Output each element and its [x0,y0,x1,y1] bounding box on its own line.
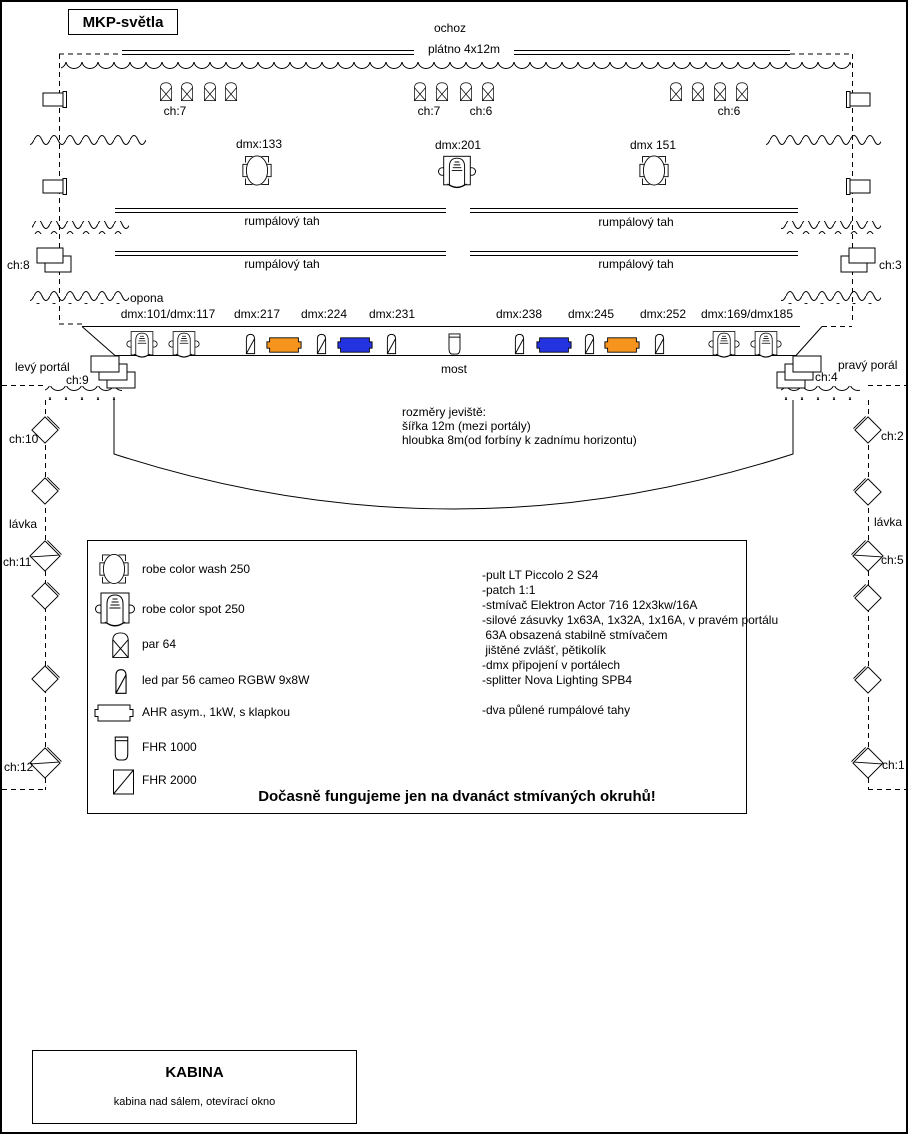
fhr1000-icon [115,737,128,760]
par64-icon [225,83,236,101]
side-light-icon [847,92,871,108]
tech-note-line: -stmívač Elektron Actor 716 12x3kw/16A [482,598,778,613]
stage-dim-line: rozměry jeviště: [402,405,637,419]
channel-label-ch2: ch:2 [881,430,904,443]
side-light-icon [847,179,871,195]
tech-notes: -pult LT Piccolo 2 S24 -patch 1:1 -stmív… [482,568,778,718]
channel-label-ch3: ch:3 [879,259,902,272]
dmx-label: dmx:169/dmx185 [687,308,807,321]
dmx-label: dmx:245 [551,308,631,321]
dmx-label: dmx:201 [418,139,498,152]
fly-bar-label: rumpálový tah [232,215,332,228]
gallery-light-icon [853,478,881,505]
legend-item-label: FHR 1000 [142,741,197,754]
channel-label-ch5: ch:5 [881,554,904,567]
wave-right-opona [781,291,881,304]
channel-label-ch1: ch:1 [882,759,905,772]
tech-note-line: -splitter Nova Lighting SPB4 [482,673,778,688]
fly-bar-row2 [115,252,798,256]
stage-dim-line: hloubka 8m(od forbíny k zadnímu horizont… [402,433,637,447]
channel-label-ch9: ch:9 [66,374,89,387]
tech-note-line: -patch 1:1 [482,583,778,598]
par64-icon [414,83,425,101]
bridge-fixtures [127,332,781,358]
robe-wash-icon [640,156,668,185]
dmx-label: dmx:231 [352,308,432,321]
tech-note-line: jištěné zvlášť, pětikolík [482,643,778,658]
wave-right-2 [781,221,881,234]
kabina-title: KABINA [33,1064,356,1081]
channel-label-ch8: ch:8 [7,259,30,272]
par64-icon [113,633,128,658]
robe-wash-icon [100,554,128,583]
title-box: MKP-světla [68,9,178,35]
tech-note-line [482,688,778,703]
robe-spot-icon [751,332,781,358]
most-label: most [414,363,494,376]
side-light-icon [43,179,67,195]
legend-item-label: led par 56 cameo RGBW 9x8W [142,674,309,687]
tech-note-line: -dva půlené rumpálové tahy [482,703,778,718]
ch3-fixture-cluster [841,248,875,272]
kabina-subtitle: kabina nad sálem, otevírací okno [33,1096,356,1108]
par64-icon [692,83,703,101]
stage-lighting-plan: MKP-světla ochoz plátno 4x12m ch:7 ch:7 … [0,0,908,1134]
ch8-fixture-cluster [37,248,71,272]
par64-icon [670,83,681,101]
gallery-light-icon [30,747,62,778]
lavka-label-left: lávka [9,518,37,531]
led-par-icon [317,334,325,353]
fhr2000-icon [114,770,134,794]
par64-icon [160,83,171,101]
gallery-light-icon [32,665,60,692]
robe-wash-icon [243,156,271,185]
opona-label: opona [130,292,163,305]
dmx-label: dmx:133 [219,138,299,151]
channel-label-ch10: ch:10 [9,433,38,446]
channel-label-ch7: ch:7 [155,105,195,118]
dmx-label: dmx:238 [479,308,559,321]
right-portal-label: pravý porál [838,359,897,372]
lavka-label-right: lávka [874,516,902,529]
wave-right-1 [766,133,881,146]
ahr-blue-fixture [338,338,372,352]
top-border-curtain [61,62,851,75]
gallery-light-icon [853,584,881,611]
gallery-light-icon [32,582,60,609]
kabina-box: KABINA kabina nad sálem, otevírací okno [32,1050,357,1124]
legend-item-label: par 64 [142,638,176,651]
tech-note-line: 63A obsazená stabilně stmívačem [482,628,778,643]
ch9-fixture-cluster [91,356,135,388]
led-par-icon [655,334,663,353]
channel-label-ch4: ch:4 [815,371,838,384]
ahr-icon [95,705,133,721]
legend-item-label: FHR 2000 [142,774,197,787]
robe-spot-icon [127,332,157,358]
channel-label-ch6: ch:6 [709,105,749,118]
par64-icon [204,83,215,101]
channel-label-ch7: ch:7 [409,105,449,118]
wave-left-1 [30,133,146,146]
par64-icon [714,83,725,101]
par64-icon [736,83,747,101]
dmx-label: dmx:101/dmx:117 [108,308,228,321]
dmx-label: dmx 151 [613,139,693,152]
legend-item-label: robe color wash 250 [142,563,250,576]
upper-dashed-frame [59,54,853,324]
par64-icon [181,83,192,101]
tech-note-line: -dmx připojení v portálech [482,658,778,673]
legend-icons [95,554,135,794]
side-light-icon [43,92,67,108]
stage-dimensions: rozměry jeviště: šířka 12m (mezi portály… [402,405,637,447]
fly-bar-label: rumpálový tah [586,258,686,271]
fhr1000-icon [449,334,460,354]
gallery-light-icon [853,666,881,693]
gallery-light-icon [32,477,60,504]
par64-icon [482,83,493,101]
led-par-icon [246,334,254,353]
legend-item-label: AHR asym., 1kW, s klapkou [142,706,290,719]
gallery-light-icon [30,540,62,571]
led-par-icon [387,334,395,353]
tech-note-line: -pult LT Piccolo 2 S24 [482,568,778,583]
channel-label-ch12: ch:12 [4,761,33,774]
ochoz-label: ochoz [405,22,495,35]
par64-icon [460,83,471,101]
robe-spot-icon [709,332,739,358]
channel-label-ch11: ch:11 [3,556,31,569]
fly-bar-label: rumpálový tah [232,258,332,271]
stage-dim-line: šířka 12m (mezi portály) [402,419,637,433]
led-par-icon [585,334,593,353]
top-par64-groups [160,83,747,101]
legend-item-label: robe color spot 250 [142,603,245,616]
ahr-blue-fixture [537,338,571,352]
robe-spot-icon [169,332,199,358]
left-portal-label: levý portál [15,361,70,374]
fly-bar-label: rumpálový tah [586,216,686,229]
tech-note-line: -silové zásuvky 1x63A, 1x32A, 1x16A, v p… [482,613,778,628]
led-par-icon [116,670,126,694]
dimmer-warning-text: Dočasně fungujeme jen na dvanáct stmívan… [182,788,732,805]
led-par-icon [515,334,523,353]
fly-bar-row1 [115,209,798,213]
gallery-light-icon [851,540,883,571]
ahr-orange-fixture [267,338,301,352]
wave-left-opona [30,291,129,304]
gallery-light-icon [853,416,881,443]
platno-label: plátno 4x12m [414,43,514,56]
par64-icon [436,83,447,101]
page-title: MKP-světla [83,14,164,31]
ahr-orange-fixture [605,338,639,352]
gallery-light-icon [851,747,883,778]
robe-spot-icon [96,593,135,626]
wave-left-2 [32,221,129,234]
robe-spot-icon [438,156,475,187]
channel-label-ch6: ch:6 [461,105,501,118]
